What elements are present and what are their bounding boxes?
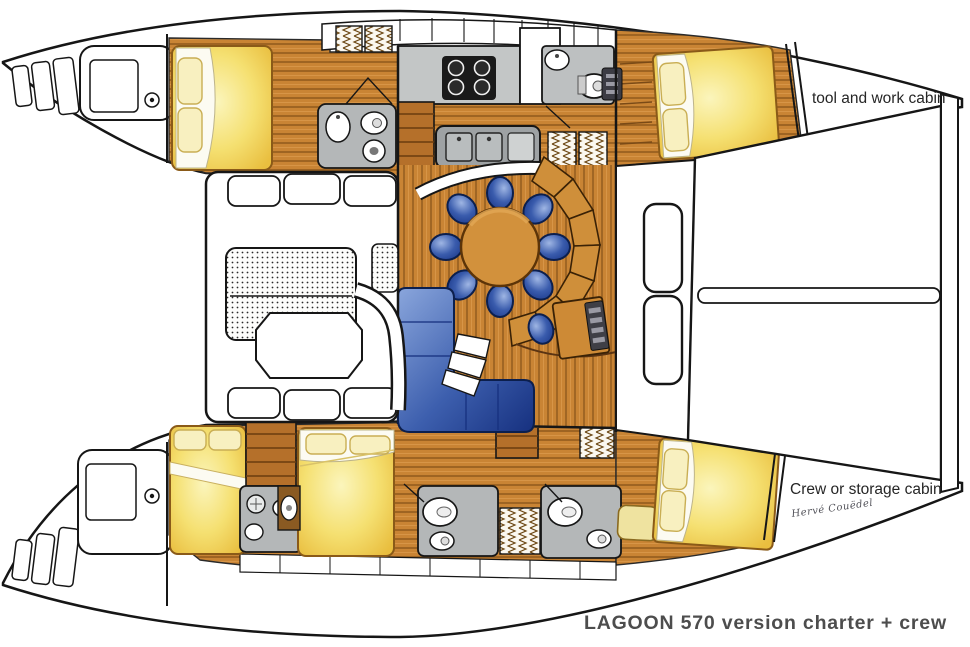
stern-platform-top	[80, 46, 174, 120]
deck-hatch	[644, 296, 682, 384]
cockpit-table	[256, 313, 362, 378]
berth-top-aft	[172, 46, 272, 170]
head-bottom-mid-1	[404, 484, 498, 556]
locker-hatch	[500, 508, 540, 554]
mast-beam	[698, 288, 940, 303]
locker-hatch	[365, 26, 392, 52]
berth-bottom-aft-1	[170, 426, 246, 554]
locker-hatch	[336, 26, 362, 52]
catamaran-plan: tool and work cabin Crew or storage cabi…	[0, 0, 970, 647]
galley	[398, 28, 560, 168]
chair	[430, 234, 462, 260]
stern-steps-top	[12, 57, 80, 115]
floor-plan-page: tool and work cabin Crew or storage cabi…	[0, 0, 970, 647]
deck-hatch	[644, 204, 682, 292]
berth-bottom-aft-2	[298, 428, 394, 556]
head-bottom-mid-2	[541, 484, 621, 558]
stern-platform-bottom	[78, 450, 172, 554]
vanity-bottom	[278, 486, 300, 530]
label-tool-cabin: tool and work cabin	[812, 90, 946, 107]
stairs-to-top-hull	[398, 102, 434, 168]
instrument-panel-top	[602, 68, 622, 100]
sink-basin	[545, 50, 569, 70]
aft-cockpit	[206, 172, 399, 422]
chair	[487, 285, 513, 317]
chair	[487, 177, 513, 209]
label-crew-cabin: Crew or storage cabin	[790, 481, 942, 498]
cockpit-cushion	[372, 244, 398, 292]
stern-steps-bottom	[12, 527, 80, 587]
sink-basin	[245, 524, 263, 540]
plan-caption: LAGOON 570 version charter + crew	[584, 612, 947, 634]
cockpit-bench-top	[228, 174, 396, 206]
chair	[538, 234, 570, 260]
berth-bottom-forward	[653, 438, 780, 550]
bow-crossbeam	[941, 94, 958, 492]
cockpit-bench-bottom	[228, 388, 396, 420]
